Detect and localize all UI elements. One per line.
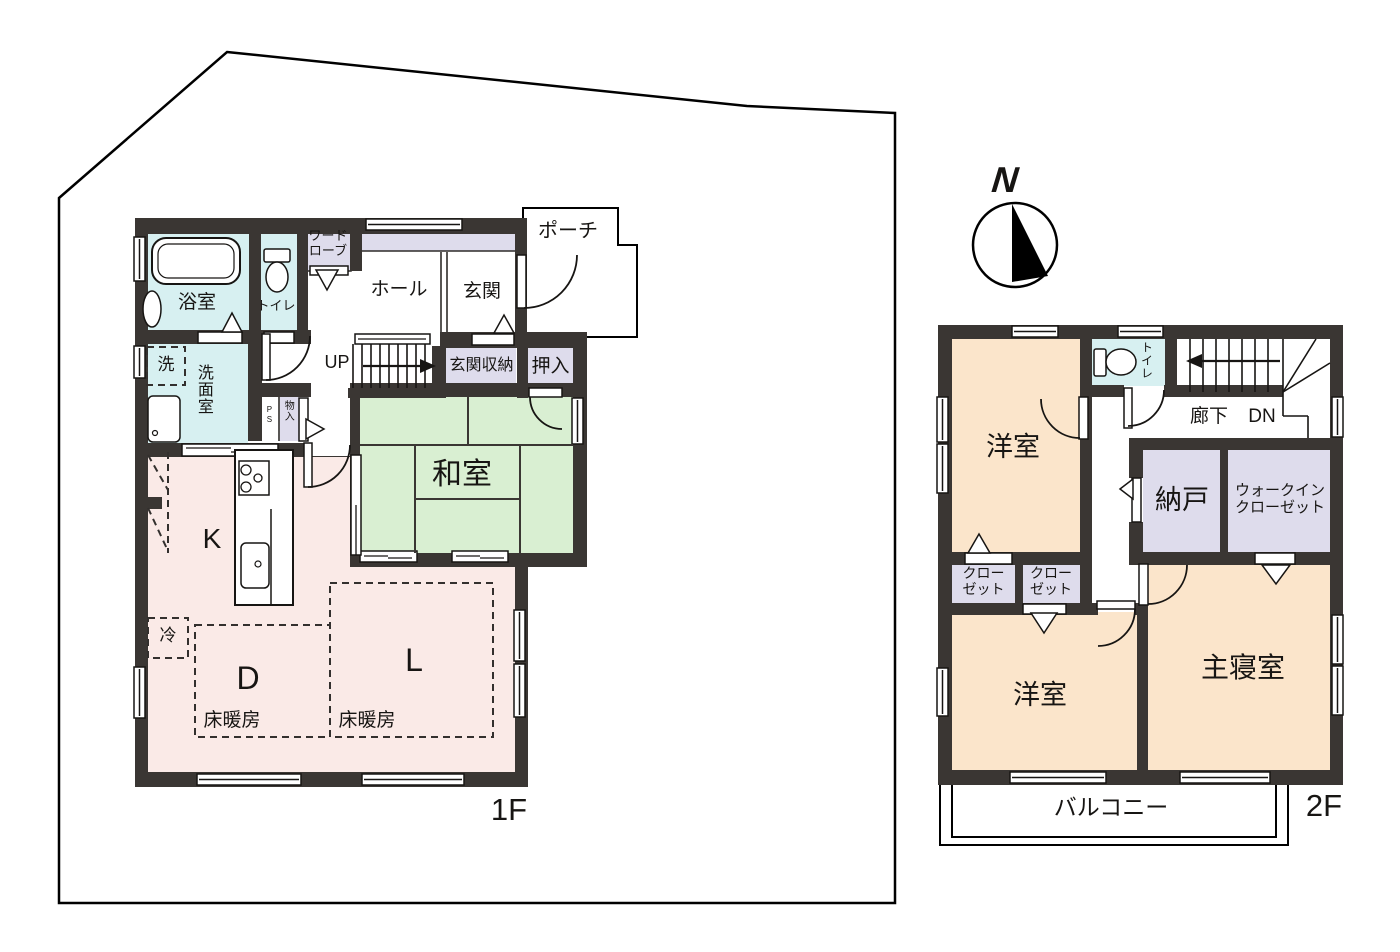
- stairs-down-label: DN: [1243, 406, 1281, 427]
- room-label-washitsu: 和室: [425, 458, 499, 492]
- washer-label: 洗: [149, 355, 183, 374]
- compass-n-label: N: [982, 160, 1028, 200]
- wall: [1164, 385, 1283, 397]
- floor2-fixtures: [1094, 349, 1136, 376]
- wall-stub: [135, 497, 162, 509]
- wall: [1092, 385, 1124, 397]
- room-label-dining: D: [229, 661, 267, 697]
- floor-heating-l-label: 床暖房: [335, 710, 399, 731]
- room-label-bath: 浴室: [171, 292, 223, 313]
- room-label-kitchen: K: [195, 523, 229, 554]
- faucet: [255, 561, 261, 567]
- entrance-inner-marker: [494, 315, 514, 333]
- closet-left-opening: [965, 553, 1012, 564]
- wardrobe-door-marker: [316, 270, 338, 290]
- dn-arrow-head: [1186, 354, 1202, 368]
- floor1-label: 1F: [483, 793, 535, 828]
- winder-line: [1283, 339, 1316, 392]
- wall: [1015, 565, 1023, 603]
- room-label-wardrobe: ワード ローブ: [306, 229, 350, 258]
- wall: [432, 346, 446, 398]
- washroom-door-leaf: [262, 334, 270, 380]
- wall: [1129, 450, 1143, 478]
- vanity-drain: [153, 431, 158, 436]
- burner: [241, 465, 251, 475]
- bath-door-opening: [198, 332, 242, 343]
- wall: [1080, 339, 1092, 615]
- entrance-step-opening: [472, 334, 514, 345]
- wall: [573, 332, 587, 567]
- room-label-entrance: 玄関: [459, 281, 505, 302]
- storage-room-marker: [1120, 479, 1133, 499]
- monoire-door-marker: [306, 419, 324, 439]
- toilet2f-door-swing: [1128, 390, 1164, 426]
- room-label-monoire: 物入: [282, 400, 293, 422]
- room-label-porch: ポーチ: [535, 220, 601, 242]
- wall: [938, 552, 1092, 565]
- refrigerator-label: 冷: [154, 626, 182, 645]
- toilet1f-tank: [264, 249, 290, 262]
- room-label-bedroom-nw: 洋室: [981, 432, 1045, 462]
- room-label-storage-room: 納戸: [1148, 485, 1216, 515]
- floor-plan-drawing: [0, 0, 1400, 952]
- wic-opening: [1255, 553, 1295, 564]
- compass-needle: [1012, 204, 1048, 282]
- washitsu-door-leaf: [529, 388, 562, 397]
- wall: [938, 603, 1098, 615]
- toilet2f-tank: [1094, 349, 1106, 376]
- kitchen-door-leaf: [304, 443, 312, 487]
- wall: [938, 770, 1343, 785]
- wall: [135, 772, 528, 787]
- bedroom-sw-door-leaf: [1097, 601, 1135, 609]
- bathtub-inner: [158, 244, 234, 278]
- wall: [1137, 603, 1148, 770]
- wall: [1129, 438, 1343, 450]
- toilet2f-door-leaf: [1124, 388, 1132, 428]
- room-label-ps: PS: [264, 405, 273, 425]
- north-arrow: [973, 203, 1057, 287]
- toilet1f-bowl: [266, 262, 288, 292]
- toilet2f-bowl: [1106, 349, 1136, 375]
- room-label-oshiire: 押入: [528, 356, 573, 377]
- room-label-closet-left: クロー ゼット: [953, 566, 1014, 597]
- room-label-hall: ホール: [366, 279, 432, 300]
- wall: [1129, 552, 1343, 565]
- burner: [241, 482, 251, 492]
- bath-stool: [143, 291, 161, 327]
- floor-heating-d-label: 床暖房: [200, 710, 264, 731]
- wall: [350, 224, 362, 271]
- corridor-label: 廊下: [1186, 406, 1232, 427]
- room-label-master-bedroom: 主寝室: [1194, 652, 1292, 683]
- floor-plan-canvas: N 浴室 トイレ ワード ローブ ホール 玄関 ポーチ UP 玄関収納 押入 物…: [0, 0, 1400, 952]
- stairs-1f: [353, 344, 436, 388]
- room-label-toilet-1f: トイレ: [254, 299, 298, 314]
- wall: [1165, 339, 1177, 392]
- balcony-label: バルコニー: [1044, 795, 1178, 821]
- ldk-floor-right: [350, 567, 515, 772]
- room-label-toilet-2f: トイレ: [1139, 341, 1152, 380]
- room-label-bedroom-sw: 洋室: [1008, 680, 1072, 710]
- winder-line: [1283, 363, 1330, 392]
- room-label-washroom: 洗面室: [194, 364, 212, 415]
- wall: [248, 383, 311, 397]
- master-door-leaf: [1139, 564, 1148, 605]
- room-label-closet-right: クロー ゼット: [1023, 566, 1079, 597]
- stairs-up-label: UP: [319, 352, 355, 372]
- bedroom-nw-door-leaf: [1079, 397, 1088, 439]
- room-label-wic: ウォークイン クローゼット: [1230, 483, 1330, 517]
- wall: [517, 346, 528, 398]
- wall: [249, 230, 261, 333]
- wall: [1220, 450, 1228, 552]
- entrance-door-leaf: [517, 255, 526, 308]
- room-label-living: L: [398, 643, 430, 679]
- floor2-label: 2F: [1297, 789, 1351, 824]
- burner: [254, 474, 262, 482]
- room-label-entrance-storage: 玄関収納: [447, 357, 516, 375]
- wall: [348, 388, 443, 398]
